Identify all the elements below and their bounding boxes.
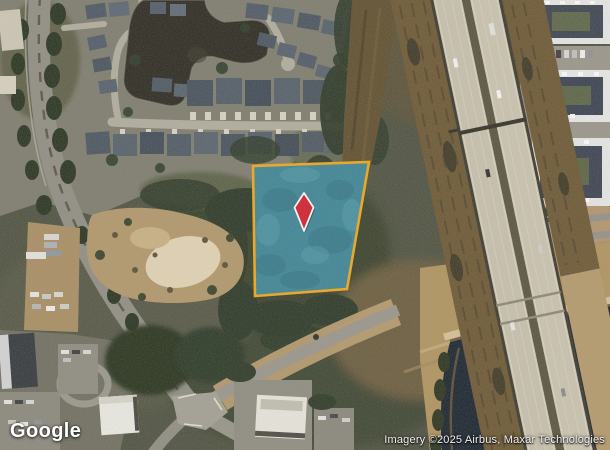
imagery-attribution: Imagery ©2025 Airbus, Maxar Technologies bbox=[384, 434, 605, 446]
satellite-map[interactable] bbox=[0, 0, 610, 450]
imagery-grain bbox=[0, 0, 610, 450]
google-logo[interactable]: Google bbox=[10, 420, 81, 443]
map-viewport[interactable]: Google Imagery ©2025 Airbus, Maxar Techn… bbox=[0, 0, 610, 450]
